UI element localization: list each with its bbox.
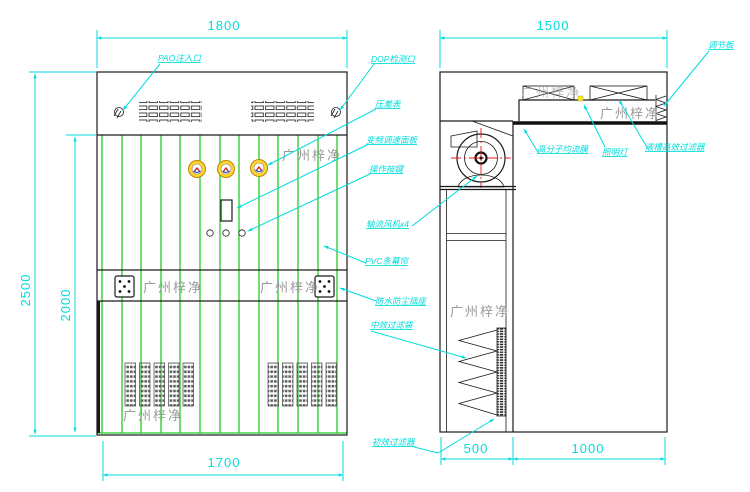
- dim-text-2000: 2000: [58, 289, 73, 322]
- supply-vent-grille-right: [251, 101, 314, 122]
- watermark: 广州梓净: [123, 408, 183, 423]
- supply-vent-grille-left: [139, 101, 202, 122]
- control-buttons-icons: [207, 230, 245, 236]
- label-control-buttons: 操作按键: [369, 164, 405, 174]
- dop-port-icon: [331, 108, 341, 119]
- side-view: 广州梓净 广州梓净 广州梓净: [440, 72, 667, 432]
- medium-filter-zigzag: [459, 330, 497, 415]
- opening-left-edge: [97, 301, 100, 433]
- label-pvc-curtain: PVC条幕帘: [365, 256, 409, 266]
- label-vfd-panel: 变频调速面板: [366, 135, 419, 145]
- pressure-gauge-3: [251, 160, 268, 177]
- label-dop-port: DOP检测口: [371, 54, 416, 64]
- dim-text-2500: 2500: [18, 274, 33, 307]
- dim-text-1700: 1700: [208, 455, 241, 470]
- dim-2000: [66, 135, 96, 432]
- label-waterproof-socket: 防水防尘插座: [375, 296, 428, 306]
- watermark: 广州梓净: [282, 148, 342, 163]
- power-socket-left: [115, 276, 134, 297]
- watermark: 广州梓净: [143, 280, 203, 295]
- pressure-gauge-2: [218, 161, 235, 178]
- dim-text-1500: 1500: [537, 18, 570, 33]
- pao-port-icon: [114, 108, 124, 119]
- pressure-gauge-1: [189, 161, 206, 178]
- dim-text-1800: 1800: [208, 18, 241, 33]
- centrifugal-fan-icon: [451, 121, 513, 188]
- watermark: 广州梓净: [260, 280, 320, 295]
- label-diffuser-membrane: 高分子均流膜: [537, 144, 590, 154]
- label-pressure-gauge: 压差表: [375, 99, 402, 109]
- label-adjusting-plate: 调节板: [708, 40, 735, 50]
- cad-drawing: 广州梓净 广州梓净 广州梓净 广州梓净: [0, 0, 750, 492]
- watermark: 广州梓净: [521, 85, 581, 100]
- label-medium-filter: 中效过滤袋: [370, 320, 414, 330]
- dim-text-1000: 1000: [572, 441, 605, 456]
- exhaust-grille-left-group: [125, 363, 194, 406]
- watermark: 广州梓净: [450, 304, 510, 319]
- callouts: PAO注入口 DOP检测口 压差表 变频调速面板 操作按键 轴流风机x4 PVC…: [123, 40, 735, 453]
- drawing-sheet: 广州梓净 广州梓净 广州梓净 广州梓净: [0, 0, 750, 492]
- label-hepa-filter: 液槽高效过滤器: [645, 142, 706, 152]
- speed-control-switch: [221, 200, 232, 221]
- front-view: 广州梓净 广州梓净 广州梓净 广州梓净: [97, 72, 347, 435]
- dim-1500: [440, 30, 667, 68]
- dim-text-500: 500: [464, 441, 489, 456]
- exhaust-grille-right-group: [268, 363, 337, 406]
- dim-2500: [29, 72, 96, 436]
- label-lamp: 照明灯: [602, 147, 629, 157]
- label-primary-filter: 初效过滤器: [372, 437, 416, 447]
- dim-1800: [97, 30, 347, 68]
- hepa-filter-box-2: [590, 86, 647, 100]
- label-pao-port: PAO注入口: [158, 53, 202, 63]
- label-fans: 轴流风机x4: [366, 219, 409, 229]
